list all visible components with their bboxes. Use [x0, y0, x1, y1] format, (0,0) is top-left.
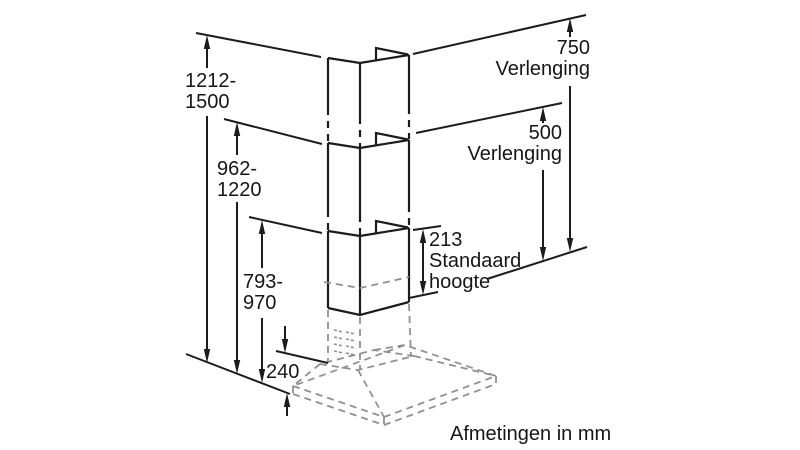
- chimney-section-750-extension: [328, 48, 409, 148]
- dimension-label-line: Verlenging: [484, 59, 590, 80]
- dimension-value-line: 750: [484, 38, 590, 59]
- dimension-value-line: 962-: [217, 159, 262, 180]
- dimension-label-line: Verlenging: [458, 144, 562, 165]
- dimension-extension-500: 500 Verlenging: [458, 123, 562, 165]
- dimension-extension-750: 750 Verlenging: [484, 38, 590, 80]
- dimension-value-line: 1220: [217, 180, 262, 201]
- chimney-inner-edge: [324, 277, 409, 288]
- rim-corners: [293, 376, 496, 425]
- rim-bottom: [293, 384, 496, 425]
- canopy-slopes: [293, 345, 496, 417]
- ref-top-750: [196, 33, 321, 57]
- dimension-value-line: 793-: [243, 272, 283, 293]
- dimension-standard-chimney: 213 Standaard hoogte: [429, 230, 521, 293]
- dimension-value-line: 213: [429, 230, 521, 251]
- chimney: [328, 48, 409, 315]
- rim-top: [293, 345, 496, 417]
- control-switches: [334, 330, 355, 355]
- dimension-value-line: 240: [266, 362, 299, 383]
- dimension-value-line: 500: [458, 123, 562, 144]
- dimension-height-with-750: 1212- 1500: [185, 71, 236, 113]
- hood-canopy: [293, 277, 496, 425]
- chimney-section-500-extension: [328, 133, 409, 236]
- canopy-top: [320, 350, 414, 370]
- dimension-value-line: 970: [243, 293, 283, 314]
- dimension-diagram: 1212- 1500 962- 1220 793- 970 240 750 Ve…: [0, 0, 800, 450]
- diagram-linework: [0, 0, 800, 450]
- chimney-section-standard: [328, 221, 409, 315]
- dimension-label-line: Standaard: [429, 251, 521, 272]
- dimension-value-line: 1212-: [185, 71, 236, 92]
- dimension-label-line: hoogte: [429, 272, 521, 293]
- dimension-canopy-height: 240: [266, 362, 299, 383]
- dimension-height-with-500: 962- 1220: [217, 159, 262, 201]
- dimension-value-line: 1500: [185, 92, 236, 113]
- dimension-height-standard: 793- 970: [243, 272, 283, 314]
- units-caption: Afmetingen in mm: [450, 423, 611, 446]
